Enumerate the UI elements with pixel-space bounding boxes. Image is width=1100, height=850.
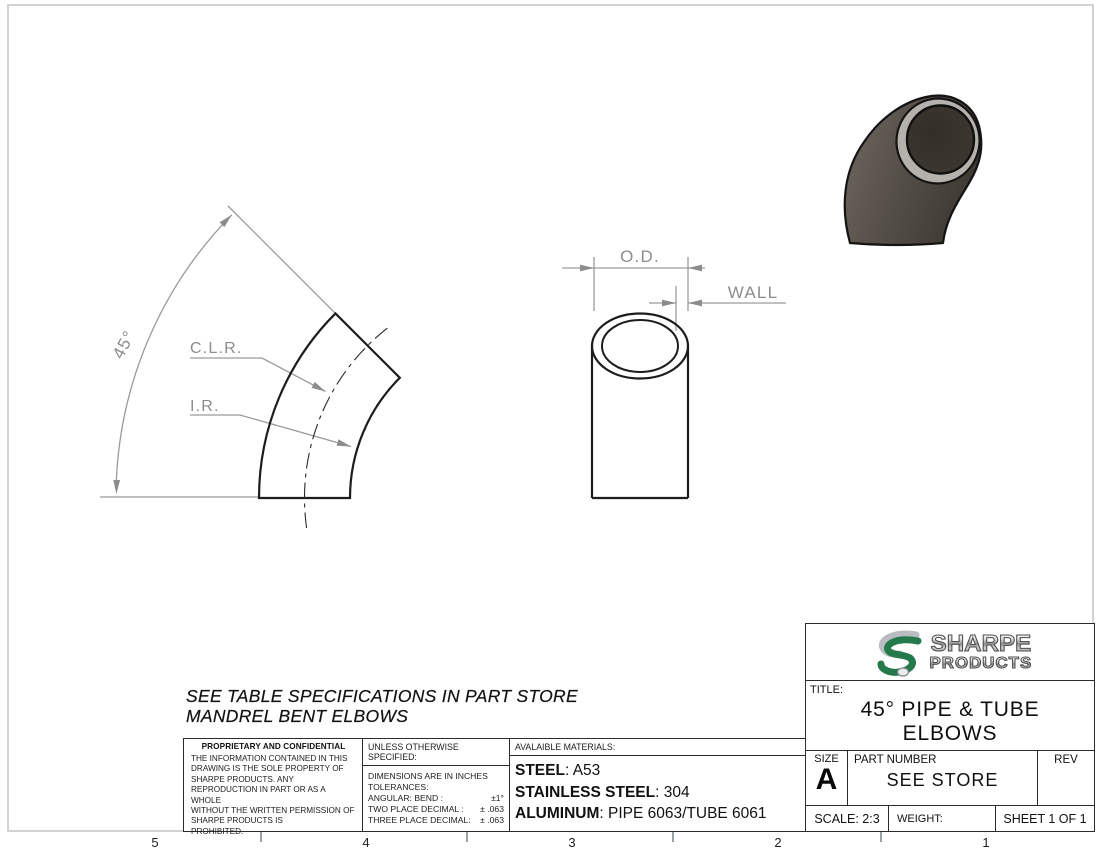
dim-arrow bbox=[113, 480, 120, 494]
elbow-outline bbox=[259, 313, 400, 498]
material-row: ALUMINUM: PIPE 6063/TUBE 6061 bbox=[515, 803, 801, 825]
tolerances-header: UNLESS OTHERWISE SPECIFIED: bbox=[363, 739, 509, 766]
material-row: STEEL: A53 bbox=[515, 760, 801, 782]
materials-header: AVALAIBLE MATERIALS: bbox=[510, 739, 805, 756]
wall-label: WALL bbox=[728, 283, 778, 302]
tolerance-value: ± .063 bbox=[480, 804, 504, 815]
material-row: STAINLESS STEEL: 304 bbox=[515, 782, 801, 804]
tube-outer-ellipse bbox=[592, 314, 688, 379]
tolerance-row: THREE PLACE DECIMAL: ± .063 bbox=[368, 815, 504, 826]
materials-box: AVALAIBLE MATERIALS: STEEL: A53 STAINLES… bbox=[510, 739, 805, 831]
company-logo: SHARPE PRODUCTS bbox=[806, 624, 1094, 681]
drawing-note: SEE TABLE SPECIFICATIONS IN PART STORE M… bbox=[186, 686, 578, 726]
proprietary-line: SHARPE PRODUCTS IS bbox=[191, 816, 356, 826]
title-block: SHARPE PRODUCTS TITLE: 45° PIPE & TUBE E… bbox=[805, 623, 1095, 832]
proprietary-line: WITHOUT THE WRITTEN PERMISSION OF bbox=[191, 806, 356, 816]
material-value: : PIPE 6063/TUBE 6061 bbox=[599, 805, 766, 822]
dim-arrow bbox=[580, 265, 594, 272]
proprietary-line: DRAWING IS THE SOLE PROPERTY OF bbox=[191, 764, 356, 774]
dim-arrow bbox=[688, 265, 702, 272]
size-value: A bbox=[806, 765, 847, 795]
elbow-3d-bore bbox=[907, 106, 974, 174]
tube-end-view: O.D. WALL bbox=[562, 247, 786, 498]
tolerance-label: TWO PLACE DECIMAL : bbox=[368, 804, 464, 815]
material-label: STEEL bbox=[515, 762, 565, 779]
part-number-cell: PART NUMBER SEE STORE bbox=[848, 751, 1038, 805]
material-label: STAINLESS STEEL bbox=[515, 784, 655, 801]
tolerances-subheader: TOLERANCES: bbox=[368, 782, 504, 793]
part-number-value: SEE STORE bbox=[848, 770, 1037, 791]
drawing-sheet: 5 4 3 2 1 45° C.L.R. I.R. bbox=[0, 0, 1100, 850]
tolerance-row: ANGULAR: BEND : ±1° bbox=[368, 793, 504, 804]
proprietary-line: SHARPE PRODUCTS. ANY bbox=[191, 775, 356, 785]
sheet-cell: SHEET 1 OF 1 bbox=[996, 806, 1094, 831]
rev-label: REV bbox=[1038, 754, 1094, 766]
scale-row: SCALE: 2:3 WEIGHT: SHEET 1 OF 1 bbox=[806, 806, 1094, 831]
rev-cell: REV bbox=[1038, 751, 1094, 805]
logo-text-line1: SHARPE bbox=[931, 632, 1032, 655]
note-line-1: SEE TABLE SPECIFICATIONS IN PART STORE bbox=[186, 686, 578, 706]
tolerance-label: THREE PLACE DECIMAL: bbox=[368, 815, 471, 826]
elbow-profile-view: 45° C.L.R. I.R. bbox=[100, 206, 400, 528]
scale-cell: SCALE: 2:3 bbox=[806, 806, 889, 831]
proprietary-header: PROPRIETARY AND CONFIDENTIAL bbox=[191, 742, 356, 751]
material-value: : A53 bbox=[565, 762, 600, 779]
proprietary-line: THE INFORMATION CONTAINED IN THIS bbox=[191, 754, 356, 764]
note-line-2: MANDREL BENT ELBOWS bbox=[186, 706, 578, 726]
dim-arrow bbox=[662, 300, 676, 307]
tube-inner-ellipse bbox=[602, 320, 678, 372]
clr-label: C.L.R. bbox=[190, 340, 243, 357]
ir-label: I.R. bbox=[190, 398, 220, 415]
tolerance-value: ± .063 bbox=[480, 815, 504, 826]
weight-cell: WEIGHT: bbox=[889, 806, 996, 831]
drawing-title-line1: 45° PIPE & TUBE bbox=[806, 698, 1094, 722]
part-number-label: PART NUMBER bbox=[848, 751, 1037, 766]
logo-text-line2: PRODUCTS bbox=[930, 656, 1033, 672]
bottom-strip: PROPRIETARY AND CONFIDENTIAL THE INFORMA… bbox=[183, 738, 805, 832]
drawing-title-line2: ELBOWS bbox=[806, 722, 1094, 746]
od-label: O.D. bbox=[620, 247, 660, 266]
upper-extension-line bbox=[228, 206, 335, 313]
title-label: TITLE: bbox=[810, 684, 843, 696]
tolerance-label: ANGULAR: BEND : bbox=[368, 793, 443, 804]
material-label: ALUMINUM bbox=[515, 805, 599, 822]
proprietary-box: PROPRIETARY AND CONFIDENTIAL THE INFORMA… bbox=[184, 739, 363, 831]
elbow-3d-render bbox=[830, 66, 1020, 256]
tolerances-box: UNLESS OTHERWISE SPECIFIED: DIMENSIONS A… bbox=[363, 739, 510, 831]
leader-arrow bbox=[337, 439, 352, 449]
title-cell: TITLE: 45° PIPE & TUBE ELBOWS bbox=[806, 681, 1094, 751]
leader-arrow bbox=[312, 382, 328, 395]
proprietary-line: PROHIBITED. bbox=[191, 827, 356, 837]
tolerance-value: ±1° bbox=[491, 793, 504, 804]
sharpe-logo-icon bbox=[870, 627, 928, 677]
size-cell: SIZE A bbox=[806, 751, 848, 805]
proprietary-line: REPRODUCTION IN PART OR AS A WHOLE bbox=[191, 785, 356, 806]
clr-leader bbox=[190, 358, 326, 392]
tolerances-units: DIMENSIONS ARE IN INCHES bbox=[368, 771, 504, 782]
material-value: : 304 bbox=[655, 784, 689, 801]
size-partnumber-row: SIZE A PART NUMBER SEE STORE REV bbox=[806, 751, 1094, 806]
dim-arrow bbox=[688, 300, 702, 307]
angle-label: 45° bbox=[109, 327, 140, 362]
tolerance-row: TWO PLACE DECIMAL : ± .063 bbox=[368, 804, 504, 815]
